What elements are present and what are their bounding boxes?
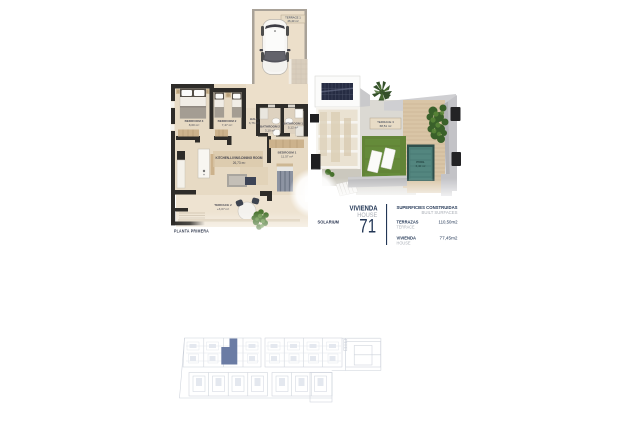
svg-text:BUILT SURFACES: BUILT SURFACES — [422, 210, 458, 215]
svg-text:77,45m2: 77,45m2 — [440, 236, 459, 241]
svg-text:SOLARIUM: SOLARIUM — [318, 220, 340, 225]
svg-text:11,57 m²: 11,57 m² — [281, 155, 293, 159]
svg-text:6,40 m²: 6,40 m² — [416, 164, 426, 168]
svg-text:7,47 m²: 7,47 m² — [222, 123, 233, 127]
svg-text:26,43 m²: 26,43 m² — [287, 19, 298, 23]
svg-text:+3,07 m²: +3,07 m² — [217, 207, 229, 211]
svg-text:68,51 m²: 68,51 m² — [380, 124, 392, 128]
svg-text:5,12 m²: 5,12 m² — [288, 125, 298, 129]
svg-text:HOUSE: HOUSE — [397, 241, 411, 246]
svg-text:PLANTA PRIMERA: PLANTA PRIMERA — [174, 229, 209, 234]
svg-text:8,00 m²: 8,00 m² — [189, 123, 200, 127]
svg-text:KITCHEN-LIVING-DINING ROOM: KITCHEN-LIVING-DINING ROOM — [216, 156, 263, 160]
svg-text:110,50m2: 110,50m2 — [439, 220, 458, 225]
svg-text:71: 71 — [359, 215, 376, 237]
svg-text:26,73 m²: 26,73 m² — [233, 161, 246, 165]
svg-text:3,76 m²: 3,76 m² — [249, 121, 260, 125]
svg-text:3,10 m²: 3,10 m² — [265, 128, 275, 132]
svg-text:TERRACE: TERRACE — [397, 225, 415, 230]
